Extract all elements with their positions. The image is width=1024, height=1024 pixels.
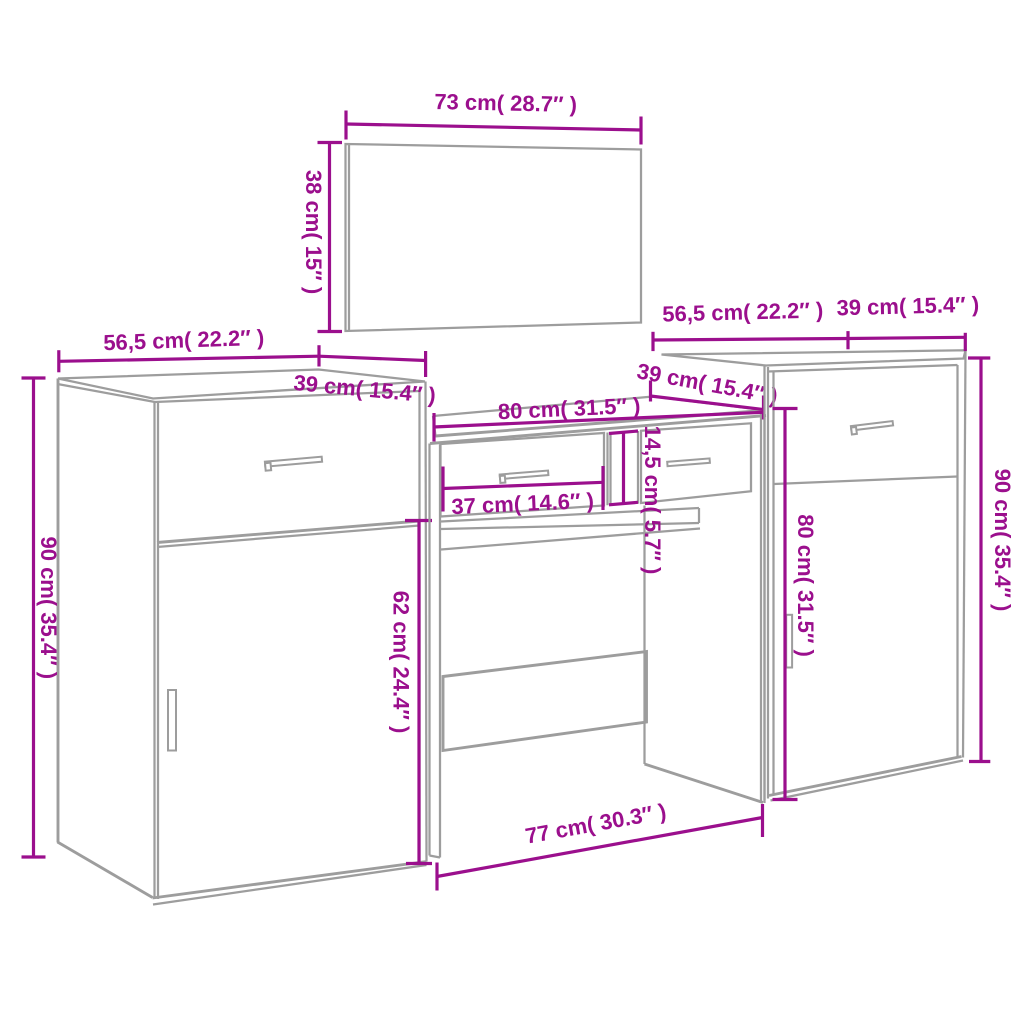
- svg-text:80 cm( 31.5″ ): 80 cm( 31.5″ ): [793, 514, 818, 657]
- svg-text:38 cm( 15″ ): 38 cm( 15″ ): [301, 170, 326, 294]
- svg-text:62 cm( 24.4″ ): 62 cm( 24.4″ ): [389, 591, 414, 734]
- svg-text:90 cm( 35.4″ ): 90 cm( 35.4″ ): [990, 469, 1015, 612]
- svg-text:39 cm( 15.4″ ): 39 cm( 15.4″ ): [836, 292, 979, 321]
- svg-text:14,5 cm( 5.7″ ): 14,5 cm( 5.7″ ): [640, 426, 665, 575]
- svg-text:73 cm( 28.7″ ): 73 cm( 28.7″ ): [434, 89, 577, 117]
- svg-text:90 cm( 35.4″ ): 90 cm( 35.4″ ): [36, 536, 61, 679]
- svg-text:56,5 cm( 22.2″ ): 56,5 cm( 22.2″ ): [662, 297, 824, 326]
